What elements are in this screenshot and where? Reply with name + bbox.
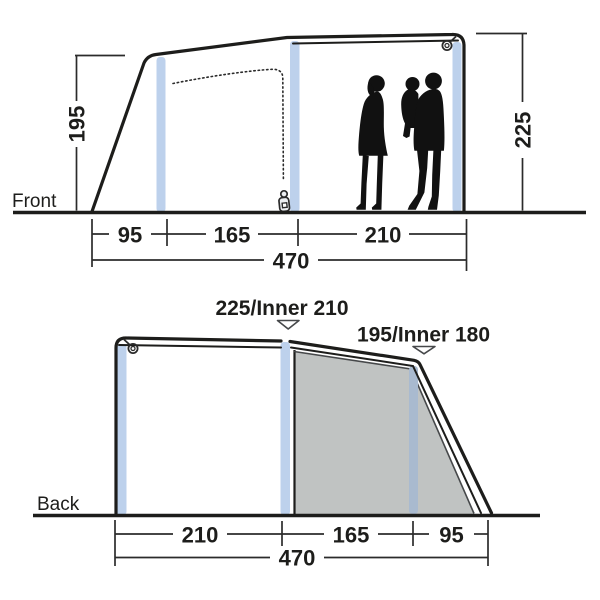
back-roof-inner-line — [119, 345, 281, 348]
back-peak-label-2: 195/Inner 180 — [357, 324, 490, 347]
front-pole-left — [157, 57, 166, 212]
back-gray-panel — [294, 352, 474, 514]
front-width-3-value: 210 — [365, 223, 402, 248]
back-width-3-value: 95 — [439, 523, 463, 548]
back-width-dimensions: 210 165 95 470 — [115, 520, 488, 571]
tent-dimension-diagram: Front 195 225 95 165 2 — [0, 0, 600, 600]
front-height-right-value: 225 — [511, 112, 536, 149]
back-total-width-value: 470 — [279, 546, 316, 571]
adult-with-child-silhouette — [401, 73, 444, 210]
front-width-dimensions: 95 165 210 470 — [92, 219, 467, 274]
diagram-canvas: Front 195 225 95 165 2 — [0, 0, 600, 600]
front-height-195-dimension: 195 — [65, 56, 126, 211]
people-silhouettes — [356, 73, 444, 210]
back-peak-label-1: 225/Inner 210 — [215, 297, 348, 320]
back-width-1-value: 210 — [182, 523, 219, 548]
woman-silhouette — [356, 75, 388, 210]
back-tent-outline — [116, 338, 281, 514]
front-width-2-value: 165 — [214, 223, 251, 248]
back-pole-left — [117, 344, 127, 515]
front-pole-middle — [290, 41, 300, 212]
back-view-label: Back — [37, 494, 80, 515]
front-width-1-value: 95 — [118, 223, 142, 248]
back-width-2-value: 165 — [333, 523, 370, 548]
front-zipper-pull — [279, 191, 290, 212]
front-height-left-value: 195 — [65, 106, 90, 143]
front-roof-inner-line — [293, 41, 458, 44]
front-height-225-dimension: 225 — [476, 34, 536, 211]
front-inner-tent-dotted-line — [173, 69, 283, 181]
back-pole-middle — [281, 342, 291, 515]
front-total-width-value: 470 — [273, 249, 310, 274]
back-view: 225/Inner 210 195/Inner 180 Back 210 165… — [33, 297, 540, 571]
front-pole-right — [453, 42, 462, 212]
front-view: Front 195 225 95 165 2 — [12, 34, 586, 274]
front-view-label: Front — [12, 191, 57, 212]
back-pole-front-shaded — [409, 366, 418, 514]
back-peak-pointer-2 — [413, 347, 435, 354]
back-peak-pointer-1 — [278, 321, 300, 330]
